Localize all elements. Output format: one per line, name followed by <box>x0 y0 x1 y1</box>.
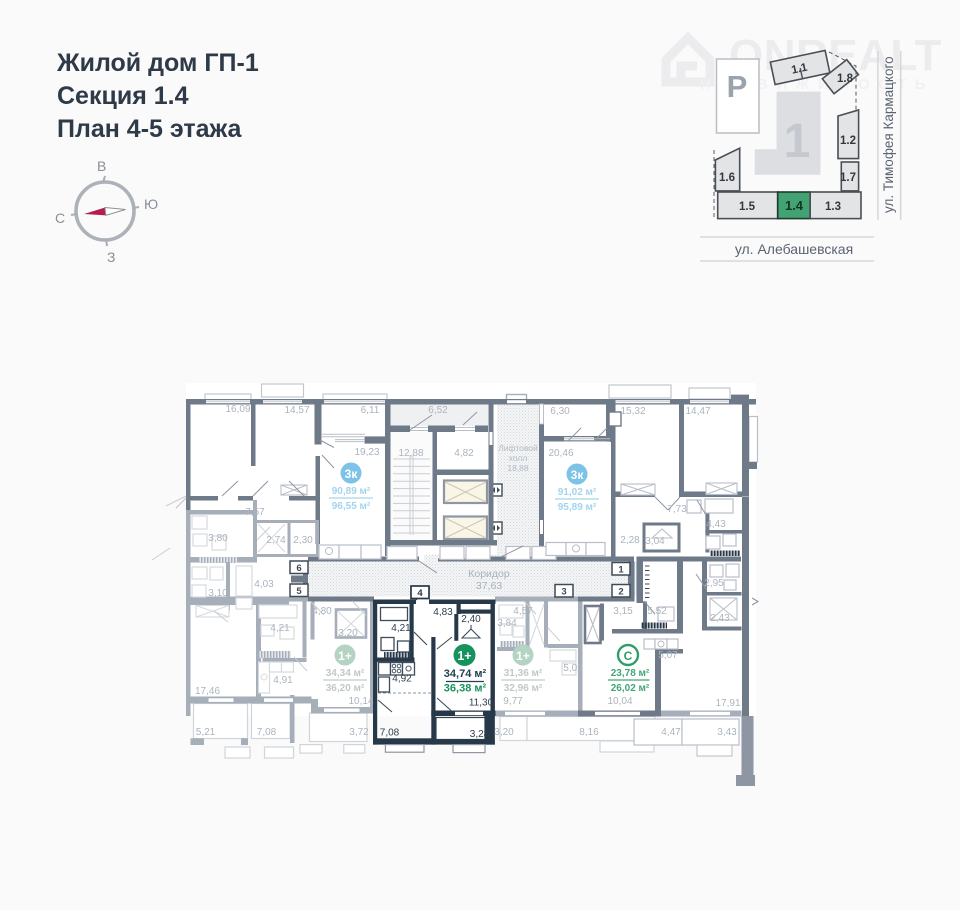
svg-text:7,08: 7,08 <box>380 728 400 739</box>
svg-text:37,63: 37,63 <box>476 580 502 592</box>
svg-text:12,88: 12,88 <box>398 448 423 459</box>
svg-text:План 4-5 этажа: План 4-5 этажа <box>57 115 243 143</box>
svg-text:4,82: 4,82 <box>454 448 474 459</box>
svg-text:3,43: 3,43 <box>717 727 737 738</box>
svg-text:2,40: 2,40 <box>461 614 481 625</box>
svg-text:1.6: 1.6 <box>719 172 735 184</box>
svg-text:19,23: 19,23 <box>354 447 379 458</box>
svg-text:26,02 м²: 26,02 м² <box>611 683 650 694</box>
svg-text:9,77: 9,77 <box>503 696 523 707</box>
svg-text:1+: 1+ <box>457 649 471 663</box>
svg-text:Жилой дом ГП-1: Жилой дом ГП-1 <box>56 49 259 77</box>
svg-text:3,04: 3,04 <box>645 536 665 547</box>
svg-text:3,28: 3,28 <box>470 729 490 740</box>
svg-text:ул. Алебашевская: ул. Алебашевская <box>735 241 853 257</box>
svg-text:17,91: 17,91 <box>715 698 740 709</box>
svg-text:3к: 3к <box>571 468 585 482</box>
svg-text:3,80: 3,80 <box>208 533 228 544</box>
svg-text:1+: 1+ <box>516 649 530 663</box>
svg-text:2,74: 2,74 <box>266 535 286 546</box>
svg-text:20,46: 20,46 <box>548 448 573 459</box>
svg-text:6,52: 6,52 <box>428 405 448 416</box>
svg-text:Лифтовой: Лифтовой <box>498 443 538 453</box>
svg-text:36,20 м²: 36,20 м² <box>326 683 365 694</box>
svg-text:14,47: 14,47 <box>685 406 710 417</box>
svg-text:3,10: 3,10 <box>208 588 228 599</box>
svg-text:4,47: 4,47 <box>661 727 681 738</box>
svg-text:5,07: 5,07 <box>658 650 678 661</box>
svg-text:ул. Тимофея Кармацкого: ул. Тимофея Кармацкого <box>881 56 896 213</box>
svg-text:4: 4 <box>417 588 423 599</box>
svg-text:91,02 м²: 91,02 м² <box>558 487 597 498</box>
svg-text:5,02: 5,02 <box>563 663 583 674</box>
svg-text:4,21: 4,21 <box>391 623 411 634</box>
svg-text:Секция 1.4: Секция 1.4 <box>57 82 189 110</box>
svg-text:2: 2 <box>618 587 623 598</box>
svg-text:2,43: 2,43 <box>710 613 730 624</box>
svg-text:6,11: 6,11 <box>361 405 380 416</box>
svg-text:С: С <box>55 210 65 226</box>
svg-text:3,15: 3,15 <box>613 606 633 617</box>
svg-text:6,30: 6,30 <box>550 406 570 417</box>
svg-text:3,20: 3,20 <box>494 727 514 738</box>
svg-text:3: 3 <box>561 587 566 598</box>
svg-text:32,96 м²: 32,96 м² <box>504 683 543 694</box>
svg-text:1.4: 1.4 <box>785 198 804 213</box>
svg-text:95,89 м²: 95,89 м² <box>558 502 597 513</box>
svg-text:4,57: 4,57 <box>513 606 533 617</box>
svg-text:3,84: 3,84 <box>497 618 517 629</box>
svg-text:34,34 м²: 34,34 м² <box>326 668 365 679</box>
svg-text:17,46: 17,46 <box>195 686 220 697</box>
svg-text:31,36 м²: 31,36 м² <box>504 668 543 679</box>
svg-text:10,04: 10,04 <box>607 696 632 707</box>
svg-text:З: З <box>107 249 115 265</box>
svg-text:4,80: 4,80 <box>312 606 332 617</box>
svg-text:1.8: 1.8 <box>837 73 854 85</box>
svg-text:1+: 1+ <box>338 649 352 663</box>
svg-text:Ю: Ю <box>144 196 158 212</box>
svg-text:36,38 м²: 36,38 м² <box>444 683 487 695</box>
svg-text:16,09: 16,09 <box>225 404 250 415</box>
svg-text:3к: 3к <box>345 467 359 481</box>
svg-text:7,73: 7,73 <box>667 504 687 515</box>
svg-text:14,57: 14,57 <box>284 405 309 416</box>
svg-text:2,30: 2,30 <box>293 535 313 546</box>
svg-text:96,55 м²: 96,55 м² <box>332 501 371 512</box>
svg-text:1.2: 1.2 <box>840 135 856 147</box>
svg-text:6: 6 <box>296 563 301 574</box>
svg-text:1.5: 1.5 <box>739 201 756 213</box>
svg-text:1: 1 <box>618 565 624 576</box>
svg-text:Коридор: Коридор <box>468 568 510 580</box>
svg-text:10,14: 10,14 <box>348 696 373 707</box>
svg-text:4,03: 4,03 <box>254 579 274 590</box>
svg-text:3,20: 3,20 <box>338 628 358 639</box>
svg-text:1: 1 <box>784 115 811 168</box>
svg-text:8,16: 8,16 <box>579 727 599 738</box>
svg-text:7,57: 7,57 <box>245 507 265 518</box>
svg-text:холл: холл <box>509 453 528 463</box>
svg-text:В: В <box>97 158 106 174</box>
svg-text:5,21: 5,21 <box>196 727 216 738</box>
svg-text:3,72: 3,72 <box>349 727 369 738</box>
svg-text:С: С <box>624 649 633 663</box>
svg-text:2,95: 2,95 <box>704 578 724 589</box>
svg-text:5,52: 5,52 <box>647 606 667 617</box>
svg-text:4,92: 4,92 <box>392 674 412 685</box>
svg-text:7,08: 7,08 <box>257 727 277 738</box>
svg-text:15,32: 15,32 <box>620 406 645 417</box>
svg-text:4,21: 4,21 <box>270 623 290 634</box>
svg-text:2,28: 2,28 <box>620 535 640 546</box>
svg-text:90,89 м²: 90,89 м² <box>332 486 371 497</box>
svg-text:34,74 м²: 34,74 м² <box>444 668 487 680</box>
svg-text:4,43: 4,43 <box>706 519 726 530</box>
svg-text:1.7: 1.7 <box>840 172 856 184</box>
svg-text:23,78 м²: 23,78 м² <box>611 668 650 679</box>
svg-text:Р: Р <box>727 69 748 104</box>
svg-text:18,88: 18,88 <box>507 463 529 473</box>
svg-text:11,30: 11,30 <box>469 698 494 709</box>
svg-text:5: 5 <box>296 586 302 597</box>
svg-text:1.3: 1.3 <box>825 201 841 213</box>
svg-text:4,91: 4,91 <box>273 675 293 686</box>
svg-text:4,83: 4,83 <box>433 607 453 618</box>
